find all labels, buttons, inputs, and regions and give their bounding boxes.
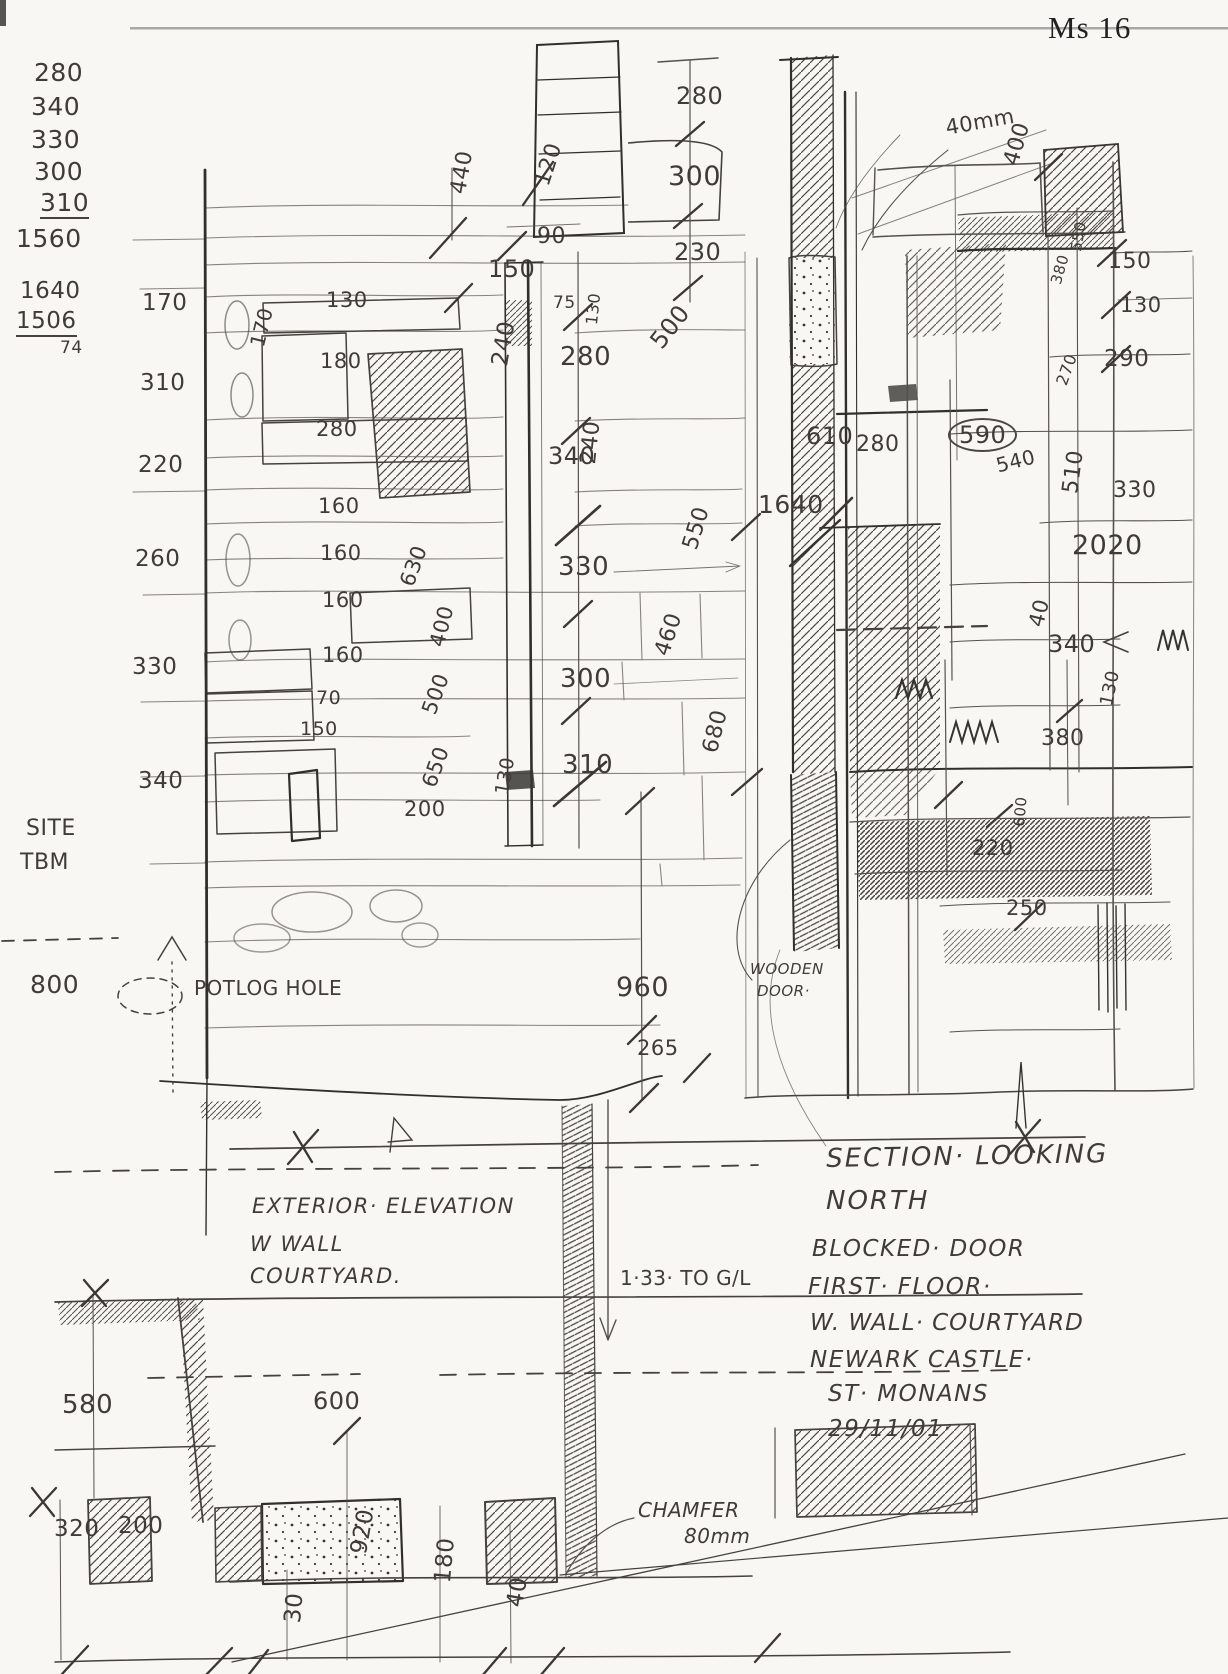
calc-value: 300: [34, 159, 83, 184]
dim-label: 150: [300, 720, 338, 739]
dim-label: 160: [318, 496, 360, 517]
dim-label: 550: [1069, 220, 1089, 252]
dim-label: 150: [1108, 251, 1152, 273]
dim-label: 220: [972, 838, 1014, 859]
dim-label: 630: [397, 543, 431, 589]
note-line: W WALL: [250, 1234, 344, 1255]
dim-label: 380: [1049, 253, 1072, 286]
note-line: FIRST· FLOOR·: [808, 1276, 992, 1299]
course-height: 330: [132, 656, 177, 679]
dim-label: 280: [560, 344, 611, 370]
note-line: 29/11/01·: [828, 1418, 952, 1441]
calc-result: 74: [60, 340, 83, 357]
dim-label: 1640: [758, 492, 824, 517]
dim-label: 280: [856, 434, 900, 456]
note-line: BLOCKED· DOOR: [812, 1238, 1025, 1261]
note-label: DOOR·: [757, 984, 810, 999]
dim-label: 340: [1048, 632, 1095, 656]
calc-value: 1506: [16, 310, 77, 337]
benchmark-label: SITE: [26, 818, 76, 840]
dim-label: 600: [313, 1389, 360, 1413]
note-label: CHAMFER: [638, 1500, 739, 1520]
dim-label: 160: [320, 543, 362, 564]
benchmark-label: TBM: [20, 852, 69, 874]
dim-label: 550: [680, 504, 714, 552]
calc-value: 330: [31, 127, 80, 152]
dim-label: 540: [994, 446, 1037, 475]
dim-label: 40: [1026, 597, 1053, 629]
dim-label: 1·33· TO G/L: [620, 1268, 751, 1288]
calc-value: 310: [40, 190, 89, 219]
dim-label: 610: [806, 424, 853, 448]
drawing-sheet: Ms 16 2803403303003101560164015067444012…: [0, 0, 1228, 1674]
course-height: 340: [138, 770, 183, 793]
dim-label: 460: [652, 611, 686, 659]
note-line: NORTH: [826, 1188, 929, 1214]
dim-label: 170: [247, 305, 276, 348]
dim-label: 920: [348, 1507, 379, 1556]
dim-label: 150: [488, 257, 535, 281]
dim-label: 200: [118, 1515, 163, 1538]
course-height: 260: [135, 548, 180, 571]
dim-label: 510: [1060, 449, 1088, 495]
dim-label: 240: [578, 420, 604, 466]
dim-label: 680: [700, 708, 732, 756]
dim-label: 130: [1120, 295, 1162, 316]
dim-label: 600: [1012, 796, 1030, 827]
note-line: NEWARK CASTLE·: [810, 1349, 1034, 1372]
dim-label: 290: [1104, 348, 1149, 371]
note-line: W. WALL· COURTYARD: [810, 1312, 1084, 1335]
dim-label: 400: [427, 604, 457, 649]
dim-label: 280: [316, 419, 358, 440]
dim-label: 250: [1006, 898, 1048, 919]
dim-label: 300: [668, 163, 721, 190]
dim-label: 90: [537, 226, 566, 248]
note-label: WOODEN: [750, 962, 824, 977]
dim-label: 300: [560, 666, 611, 692]
dim-label: 500: [646, 301, 694, 353]
calc-sum: 1560: [16, 226, 82, 251]
dim-label: 330: [1113, 480, 1157, 502]
dim-label: 2020: [1072, 532, 1143, 559]
dim-label: 130: [1098, 669, 1123, 708]
dim-label: 230: [674, 240, 721, 264]
calc-value: 1640: [20, 280, 81, 303]
course-height: 310: [140, 372, 185, 395]
dim-label: 380: [1041, 728, 1085, 750]
dim-label: 40: [504, 1575, 532, 1609]
dim-label: 120: [532, 141, 566, 189]
dim-label: 180: [432, 1537, 459, 1584]
dim-label: 200: [404, 799, 446, 820]
note-label: 80mm: [684, 1526, 750, 1546]
dim-label: 500: [419, 671, 453, 717]
dim-label: 180: [320, 351, 362, 372]
dim-label: 800: [30, 972, 79, 997]
note-label: POTLOG HOLE: [194, 978, 342, 998]
dim-label: 75: [553, 295, 576, 312]
note-line: EXTERIOR· ELEVATION: [252, 1196, 515, 1217]
dim-label: 310: [562, 752, 613, 778]
dim-label: 40mm: [944, 106, 1016, 139]
dim-label: 580: [62, 1392, 113, 1418]
dim-label: 270: [1054, 352, 1080, 388]
course-height: 170: [142, 292, 187, 315]
note-line: COURTYARD.: [250, 1266, 402, 1287]
dim-label: 240: [489, 319, 520, 368]
note-line: ST· MONANS: [828, 1383, 989, 1406]
dim-label: 960: [616, 974, 669, 1001]
dim-label: 160: [322, 590, 364, 611]
dim-label: 590: [948, 418, 1017, 452]
dim-label: 160: [322, 645, 364, 666]
dim-label: 440: [448, 149, 477, 196]
dim-label: 70: [316, 689, 341, 708]
course-height: 220: [138, 454, 183, 477]
note-line: SECTION· LOOKING: [826, 1141, 1108, 1172]
dim-label: 130: [493, 756, 518, 796]
annotation-layer: 2803403303003101560164015067444012028030…: [0, 0, 1228, 1674]
dim-label: 320: [54, 1518, 99, 1541]
dim-label: 265: [637, 1038, 679, 1059]
dim-label: 650: [419, 744, 453, 790]
calc-value: 340: [31, 94, 80, 119]
dim-label: 280: [676, 84, 723, 108]
calc-value: 280: [34, 60, 83, 85]
dim-label: 30: [282, 1592, 308, 1624]
dim-label: 330: [558, 554, 609, 580]
dim-label: 130: [584, 292, 603, 326]
dim-label: 130: [326, 290, 368, 311]
